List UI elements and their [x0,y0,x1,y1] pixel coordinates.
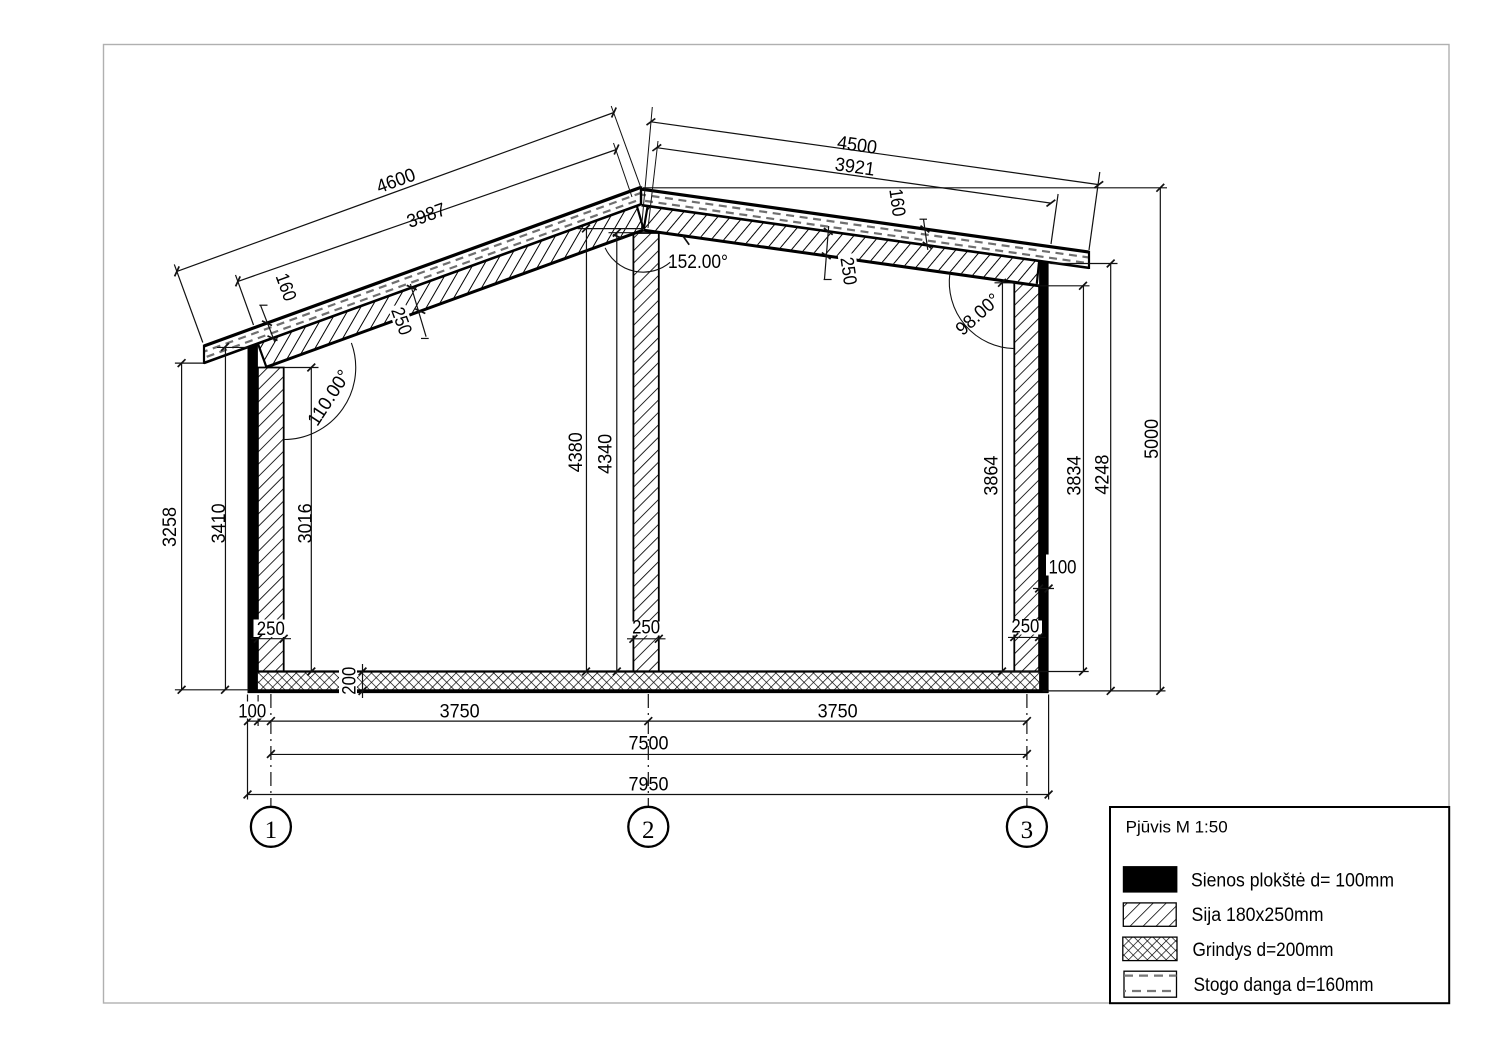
svg-text:Pjūvis M 1:50: Pjūvis M 1:50 [1126,818,1228,836]
svg-text:2: 2 [642,817,655,844]
svg-text:250: 250 [257,619,285,640]
svg-text:3750: 3750 [818,701,858,722]
svg-text:4248: 4248 [1093,455,1114,495]
svg-text:Stogo danga d=160mm: Stogo danga d=160mm [1194,975,1374,996]
svg-text:3410: 3410 [209,503,230,543]
svg-text:3864: 3864 [981,455,1002,495]
svg-text:100: 100 [1049,558,1077,579]
svg-text:Grindys d=200mm: Grindys d=200mm [1193,940,1334,961]
svg-text:Sienos plokštė d= 100mm: Sienos plokštė d= 100mm [1191,870,1394,891]
svg-text:1: 1 [265,817,278,844]
svg-text:100: 100 [238,701,266,722]
svg-text:Sija 180x250mm: Sija 180x250mm [1192,905,1324,926]
svg-text:3016: 3016 [296,503,317,543]
svg-text:4340: 4340 [596,434,617,474]
svg-text:3750: 3750 [440,701,480,722]
svg-text:160: 160 [884,187,909,218]
svg-text:5000: 5000 [1142,419,1163,459]
svg-text:3834: 3834 [1065,455,1086,495]
svg-text:250: 250 [835,256,860,287]
svg-text:152.00°: 152.00° [668,252,728,273]
svg-text:3: 3 [1021,817,1034,844]
svg-text:200: 200 [339,667,360,695]
svg-text:4380: 4380 [566,432,587,472]
svg-text:3258: 3258 [160,507,181,547]
